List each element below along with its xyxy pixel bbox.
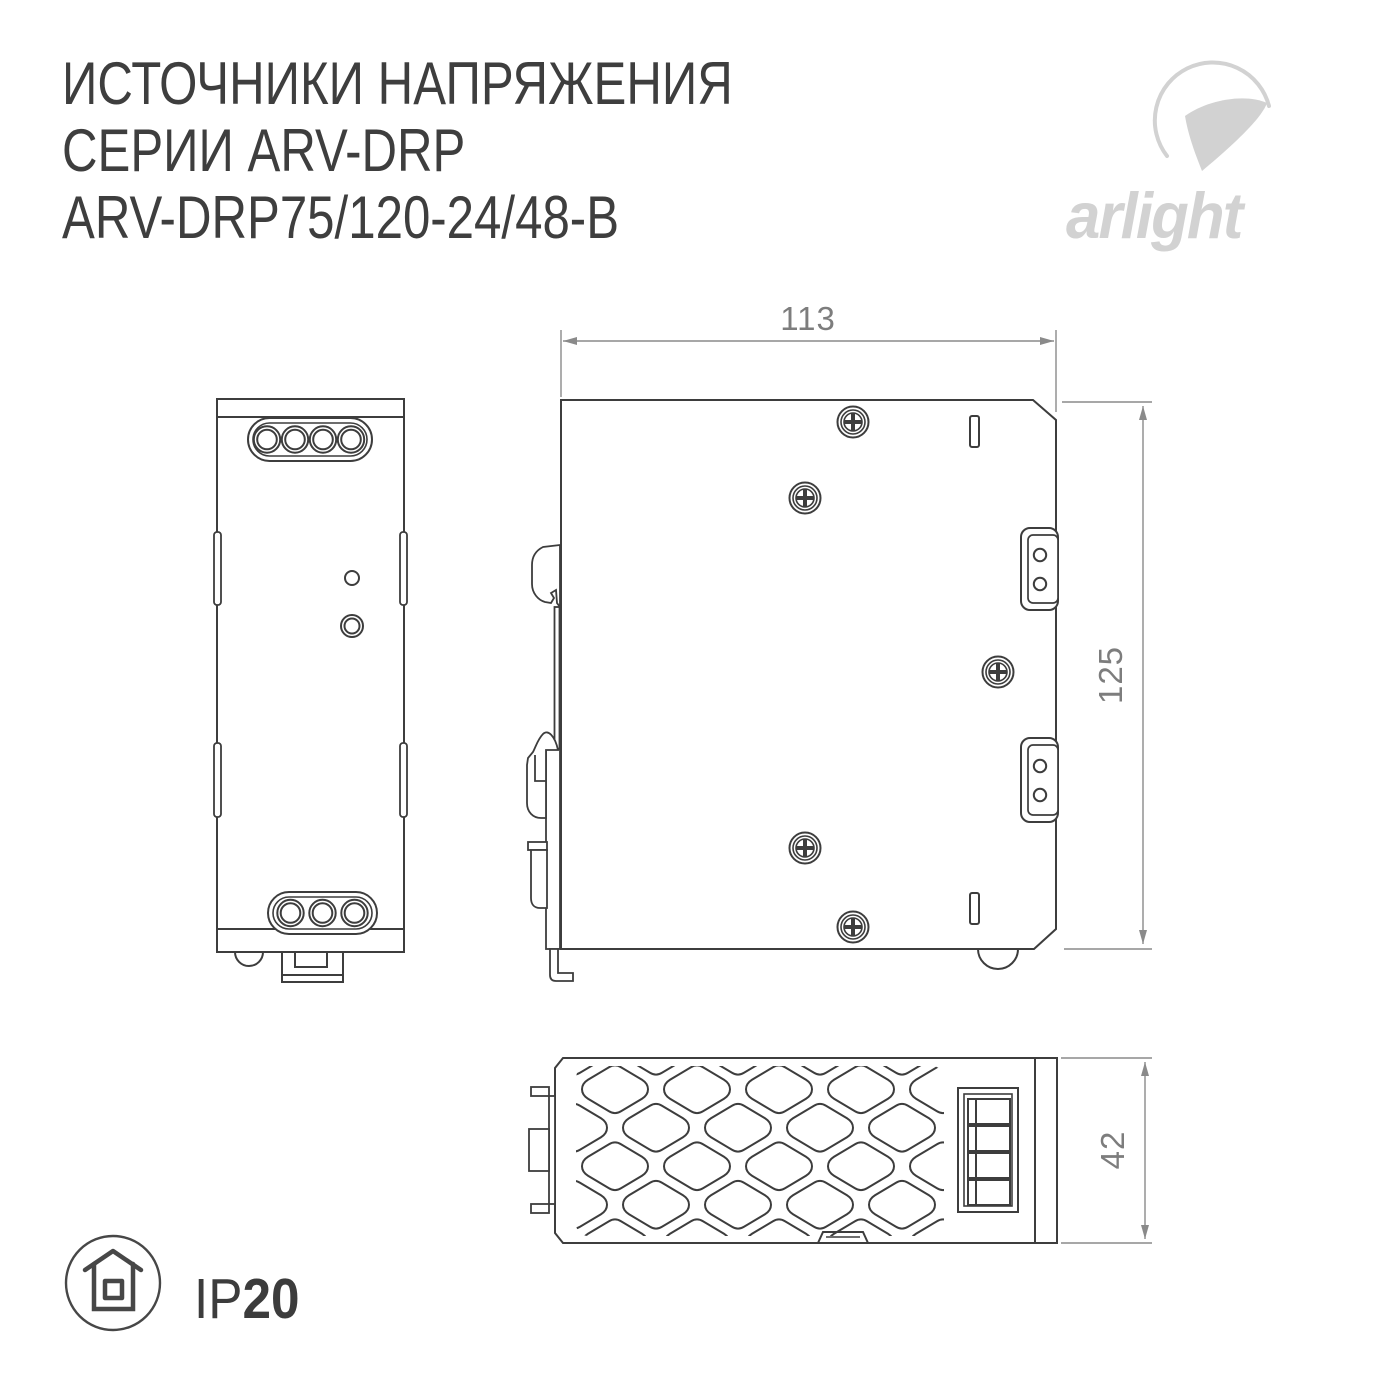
- din-latch-tab: [528, 842, 547, 850]
- bottom-terminal-block: [958, 1088, 1018, 1212]
- front-led-indicator: [345, 571, 359, 585]
- din-latch-body: [531, 850, 547, 908]
- din-slider: [546, 749, 560, 949]
- bottom-mount-block: [529, 1129, 549, 1171]
- dimension-depth: 42: [1061, 1058, 1152, 1243]
- bottom-left-fittings: [529, 1087, 555, 1213]
- dimension-width-value: 113: [780, 300, 836, 337]
- front-edge-slots: [214, 532, 407, 817]
- dimension-height: 125: [1062, 402, 1152, 949]
- din-clip-top: [532, 545, 560, 607]
- side-bottom-bump: [978, 949, 1018, 969]
- side-connector-tab-top: [1021, 528, 1058, 610]
- front-body: [217, 399, 404, 952]
- screw: [838, 407, 869, 438]
- front-bottom-bump: [235, 952, 263, 966]
- side-slot-top: [970, 416, 979, 447]
- technical-drawing: 113 125 42: [0, 0, 1400, 1400]
- screw: [790, 483, 821, 514]
- din-rail-clip: [527, 545, 573, 981]
- screw: [983, 657, 1014, 688]
- house-in-circle-icon: [66, 1236, 160, 1330]
- dimension-width: 113: [561, 300, 1056, 412]
- front-din-foot: [282, 952, 343, 982]
- front-view: [214, 399, 407, 982]
- screw: [838, 912, 869, 943]
- side-connector-tab-bottom: [1021, 738, 1058, 822]
- bottom-tab-bottom: [531, 1204, 549, 1213]
- front-bottom-terminal: [268, 892, 377, 934]
- side-view: [527, 400, 1058, 981]
- ventilation-mesh: [570, 1062, 950, 1240]
- ip-value: 20: [242, 1267, 299, 1331]
- din-rail-edge: [555, 607, 560, 749]
- bottom-view: [529, 1058, 1057, 1243]
- din-release-hook: [550, 949, 573, 981]
- dimension-depth-value: 42: [1094, 1131, 1131, 1170]
- datasheet-page: ИСТОЧНИКИ НАПРЯЖЕНИЯ СЕРИИ ARV-DRP ARV-D…: [0, 0, 1400, 1400]
- bottom-edge-strip: [549, 1096, 555, 1204]
- bottom-tab-top: [531, 1087, 549, 1096]
- ip-prefix: IP: [194, 1267, 242, 1331]
- front-top-terminal: [248, 418, 372, 461]
- side-slot-bottom: [970, 893, 979, 924]
- front-adjust-pot: [341, 615, 363, 637]
- ip-rating-label: IP20: [194, 1266, 300, 1332]
- dimension-height-value: 125: [1092, 646, 1129, 704]
- screw: [790, 833, 821, 864]
